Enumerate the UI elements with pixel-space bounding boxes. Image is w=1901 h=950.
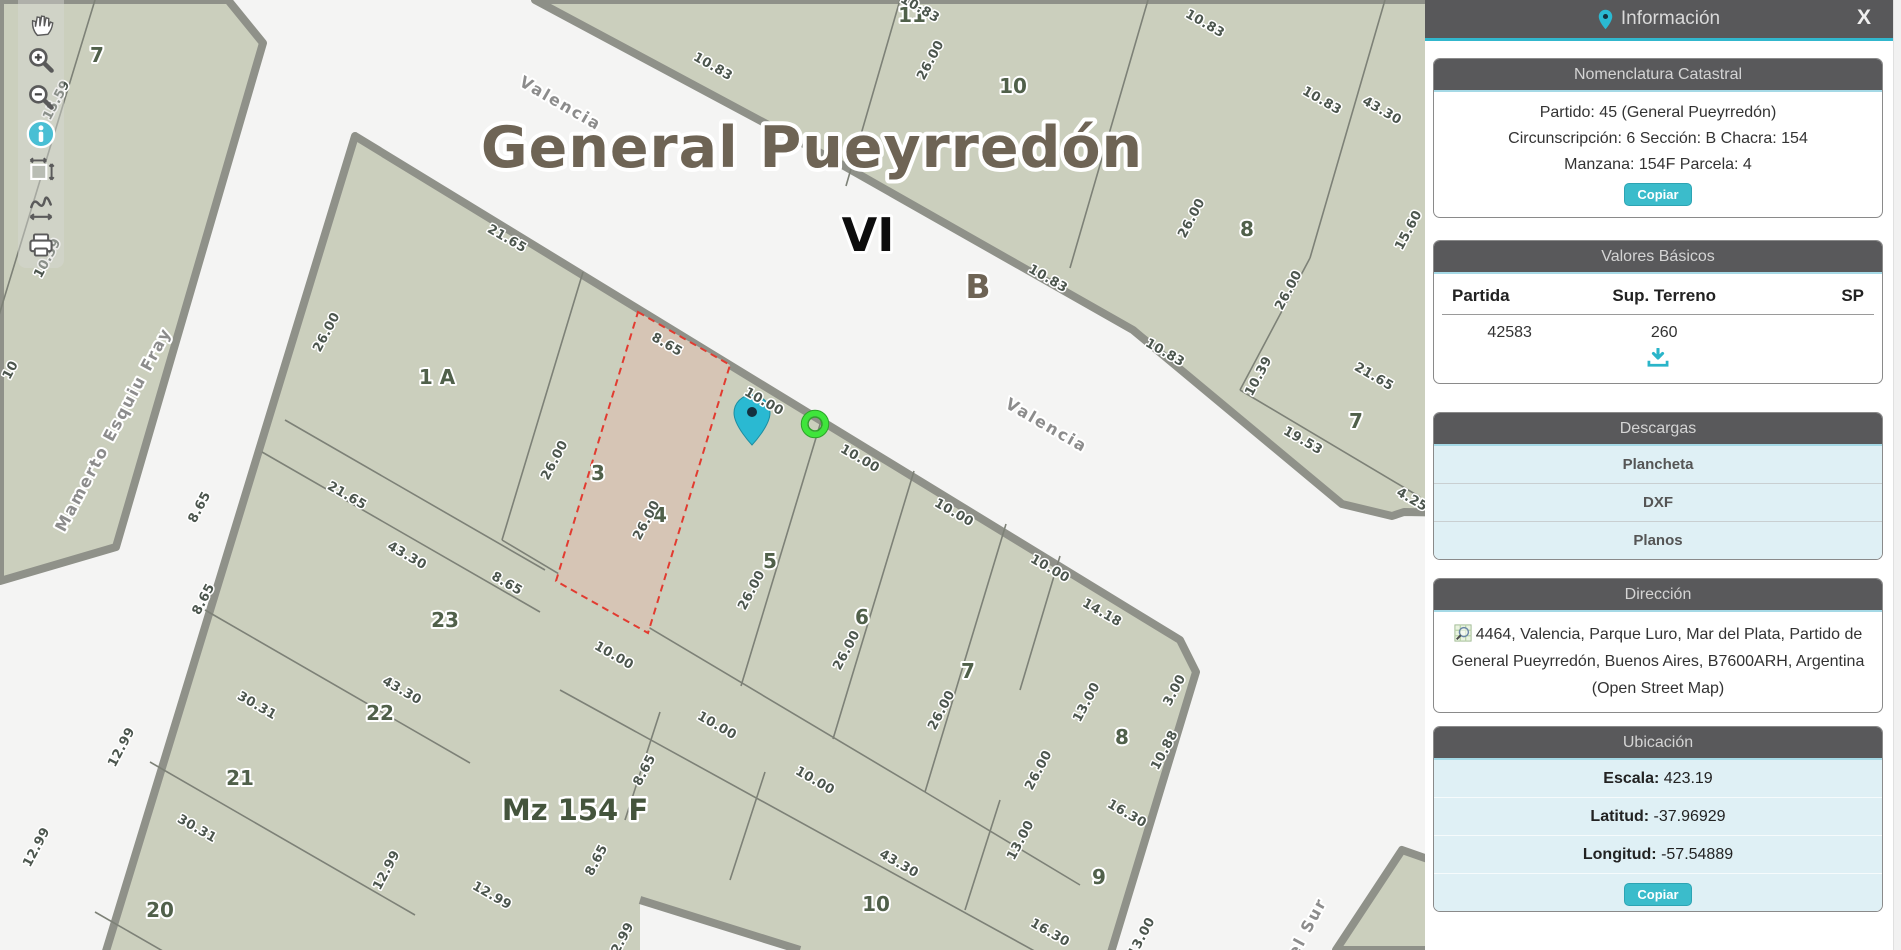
street-map-icon — [1454, 624, 1472, 642]
info-panel: Información X Nomenclatura Catastral Par… — [1425, 0, 1893, 950]
parcel-number: 20 — [146, 898, 174, 922]
info-panel-header: Información X — [1425, 0, 1893, 41]
section-title: Ubicación — [1434, 727, 1882, 760]
location-list: Escala: 423.19Latitud: -37.96929Longitud… — [1434, 760, 1882, 874]
zoom-out-icon — [26, 82, 56, 112]
column-header: SP — [1761, 286, 1864, 306]
parcel-number: 5 — [763, 549, 777, 573]
location-row: Latitud: -37.96929 — [1434, 798, 1882, 836]
download-item-dxf[interactable]: DXF — [1434, 484, 1882, 522]
section-nomenclatura: Nomenclatura Catastral Partido: 45 (Gene… — [1433, 58, 1883, 218]
copy-nomenclatura-button[interactable]: Copiar — [1624, 183, 1691, 206]
section-title: Descargas — [1434, 413, 1882, 446]
parcel-number: 1 A — [419, 365, 456, 389]
map-toolbar — [18, 0, 64, 268]
location-row: Longitud: -57.54889 — [1434, 836, 1882, 874]
zone-label: VI — [842, 208, 895, 262]
parcel-number: 7 — [90, 43, 104, 67]
pin-icon — [1598, 9, 1613, 30]
info-tool-button[interactable] — [23, 117, 59, 151]
measure-icon — [26, 193, 56, 223]
section-valores: Valores Básicos Partida Sup. Terreno SP … — [1433, 240, 1883, 384]
block-label: Mz 154 F — [502, 793, 648, 827]
parcel-number: 22 — [366, 701, 394, 725]
zoom-out-button[interactable] — [23, 80, 59, 114]
measure-tool-button[interactable] — [23, 191, 59, 225]
download-item-planos[interactable]: Planos — [1434, 522, 1882, 559]
download-item-plancheta[interactable]: Plancheta — [1434, 446, 1882, 484]
zoom-in-button[interactable] — [23, 43, 59, 77]
parcel-number: 10 — [999, 74, 1027, 98]
panel-title: Información — [1621, 8, 1720, 30]
zoom-extent-button[interactable] — [23, 154, 59, 188]
divider — [1442, 314, 1874, 315]
section-title: Dirección — [1434, 579, 1882, 612]
section-descargas: Descargas PlanchetaDXFPlanos — [1433, 412, 1883, 560]
parcel-number: 8 — [1115, 725, 1129, 749]
valores-table-header: Partida Sup. Terreno SP — [1434, 274, 1882, 312]
extent-icon — [26, 156, 56, 186]
close-button[interactable]: X — [1851, 5, 1877, 31]
parcel-number: 6 — [855, 605, 869, 629]
sup-terreno-value: 260 — [1567, 324, 1761, 342]
section-ubicacion: Ubicación Escala: 423.19Latitud: -37.969… — [1433, 726, 1883, 912]
printer-icon — [26, 230, 56, 260]
partida-value: 42583 — [1452, 324, 1567, 342]
parcel-number: 7 — [1349, 409, 1363, 433]
panel-scrollbar[interactable] — [1893, 0, 1901, 950]
section-title: Valores Básicos — [1434, 241, 1882, 274]
download-report-button[interactable] — [1647, 348, 1669, 371]
parcel-number: 21 — [226, 766, 254, 790]
zoom-in-icon — [26, 45, 56, 75]
parcel-number: 10 — [862, 892, 890, 916]
nomenclatura-line: Manzana: 154F Parcela: 4 — [1438, 152, 1878, 178]
downloads-list: PlanchetaDXFPlanos — [1434, 446, 1882, 559]
print-button[interactable] — [23, 228, 59, 262]
valores-table-row: 42583 260 — [1434, 317, 1882, 344]
column-header: Sup. Terreno — [1567, 286, 1761, 306]
secb-label: B — [965, 267, 990, 306]
section-title: Nomenclatura Catastral — [1434, 59, 1882, 92]
info-icon — [25, 118, 57, 150]
nomenclatura-line: Partido: 45 (General Pueyrredón) — [1438, 100, 1878, 126]
parcel-number: 3 — [591, 461, 605, 485]
pan-tool-button[interactable] — [23, 6, 59, 40]
download-icon — [1647, 348, 1669, 368]
nomenclatura-line: Circunscripción: 6 Sección: B Chacra: 15… — [1438, 126, 1878, 152]
section-direccion: Dirección 4464, Valencia, Parque Luro, M… — [1433, 578, 1883, 713]
parcel-number: 8 — [1240, 217, 1254, 241]
cadastral-map-app: General PueyrredónVIBMz 154 FValenciaVal… — [0, 0, 1901, 950]
hand-icon — [26, 8, 56, 38]
parcel-number: 23 — [431, 608, 459, 632]
sp-value — [1761, 324, 1864, 342]
copy-location-button[interactable]: Copiar — [1624, 883, 1691, 906]
location-row: Escala: 423.19 — [1434, 760, 1882, 798]
address-text: 4464, Valencia, Parque Luro, Mar del Pla… — [1452, 626, 1865, 697]
parcel-number: 7 — [961, 659, 975, 683]
parcel-number: 9 — [1092, 865, 1106, 889]
column-header: Partida — [1452, 286, 1567, 306]
